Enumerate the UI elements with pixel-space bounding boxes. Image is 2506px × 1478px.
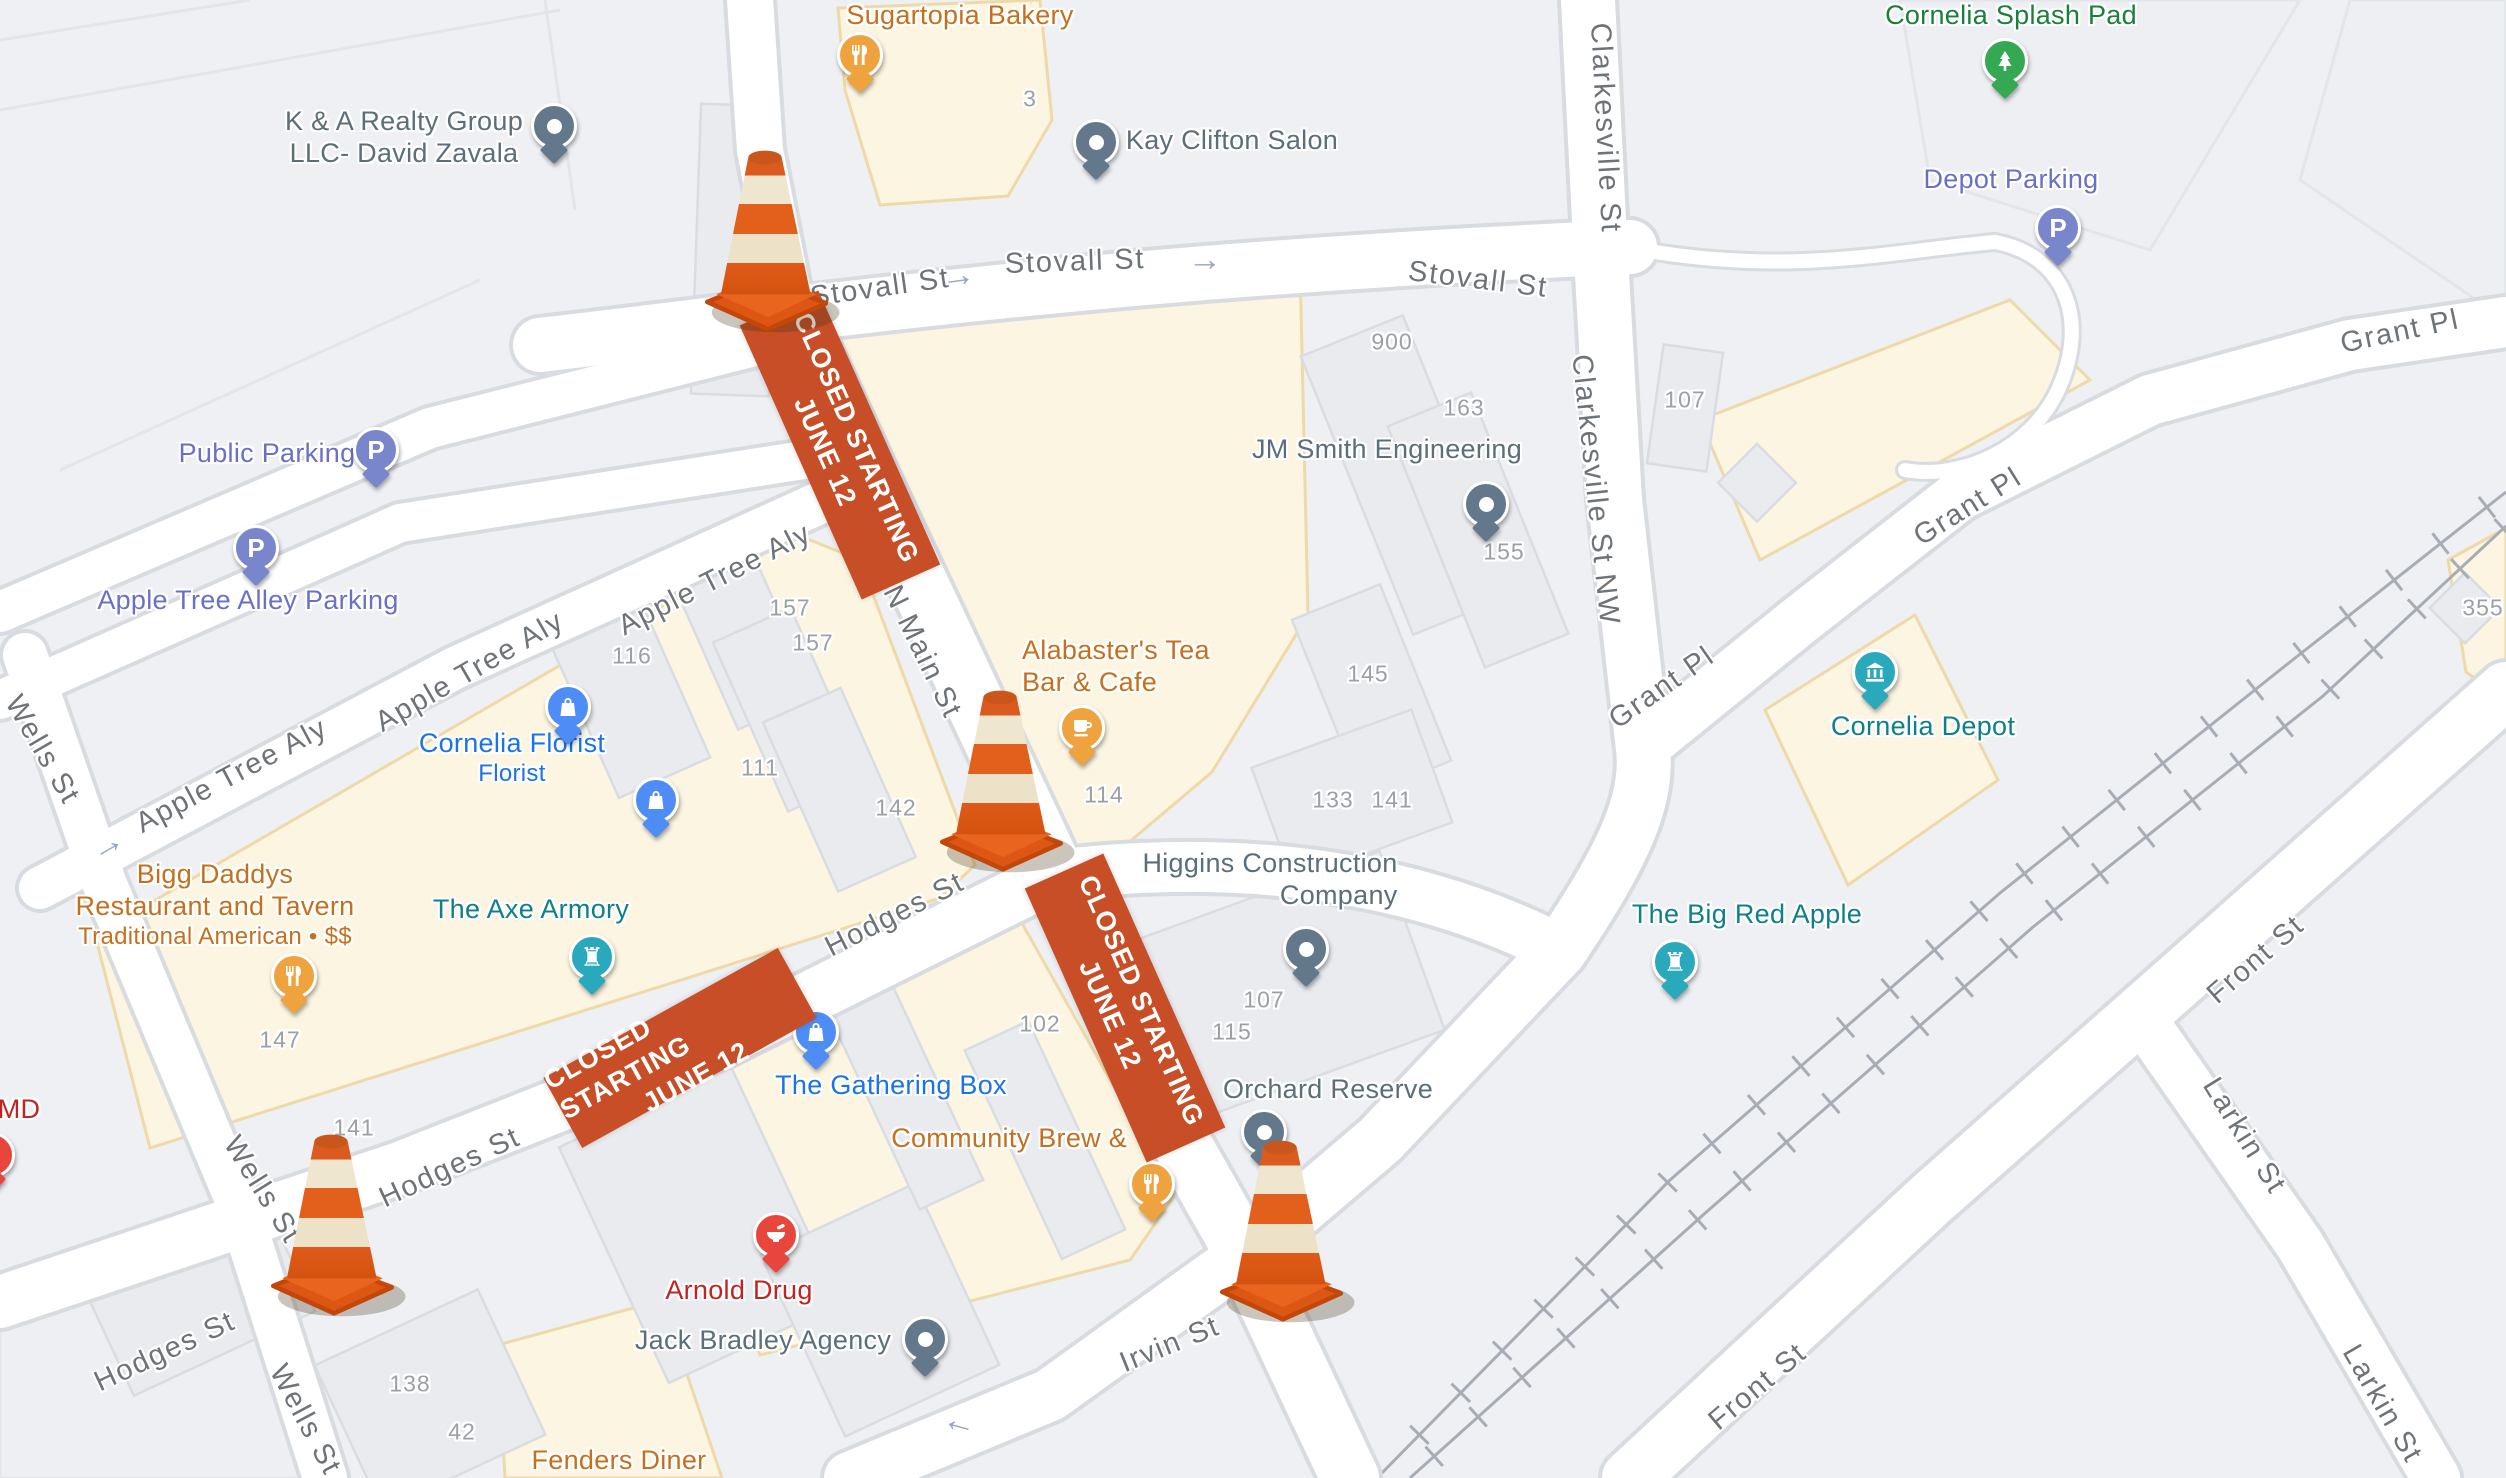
parking-icon: P (367, 435, 384, 466)
building-number: 142 (875, 795, 916, 822)
building-number: 145 (1347, 661, 1388, 688)
building-number: 157 (792, 630, 833, 657)
poi-label-splash-pad[interactable]: Cornelia Splash Pad (1885, 0, 2137, 32)
traffic-cone (1204, 1126, 1356, 1324)
big-red-apple-pin[interactable]: ♜ (1652, 939, 1698, 985)
direction-arrow-icon: → (938, 254, 977, 297)
poi-label-arnold-drug[interactable]: Arnold Drug (665, 1275, 812, 1307)
parking-pin[interactable]: P (2035, 205, 2081, 251)
parking-icon: P (2049, 213, 2066, 244)
shop-pin[interactable] (633, 777, 679, 823)
rook-icon: ♜ (1663, 949, 1686, 975)
agency-pin[interactable] (902, 1316, 948, 1362)
building-number: 115 (1212, 1019, 1252, 1046)
construction-pin[interactable] (1283, 926, 1329, 972)
axe-armory-pin[interactable]: ♜ (569, 934, 615, 980)
restaurant-pin[interactable] (271, 953, 317, 999)
poi-label-apple-alley-parking[interactable]: Apple Tree Alley Parking (97, 585, 398, 617)
tree-icon (1993, 49, 2017, 73)
park-pin[interactable] (1982, 38, 2028, 84)
florist-pin[interactable] (545, 684, 591, 730)
poi-label-higgins[interactable]: Higgins Construction Company (1142, 848, 1397, 912)
building-number: 900 (1371, 329, 1412, 356)
shopping-bag-icon (804, 1020, 828, 1044)
building-number: 133 (1312, 787, 1353, 814)
restaurant-pin[interactable] (837, 32, 883, 78)
building-number: 107 (1664, 387, 1705, 414)
building-number: 147 (259, 1027, 300, 1054)
poi-label-kna-realty[interactable]: K & A Realty Group LLC- David Zavala (285, 106, 523, 170)
building-number: 355 (2462, 595, 2503, 622)
poi-label-sugartopia[interactable]: Sugartopia Bakery (846, 0, 1073, 32)
realty-pin[interactable] (531, 103, 577, 149)
fork-knife-icon (282, 964, 306, 988)
brewpub-pin[interactable] (1129, 1161, 1175, 1207)
fork-knife-icon (848, 43, 872, 67)
poi-label-cornelia-florist[interactable]: Cornelia Florist Florist (419, 728, 605, 788)
dot-icon (1299, 942, 1314, 957)
traffic-cone (689, 136, 841, 334)
poi-label-kay-clifton[interactable]: Kay Clifton Salon (1126, 125, 1338, 157)
poi-label-bigg-daddys[interactable]: Bigg Daddys Restaurant and Tavern Tradit… (76, 859, 355, 951)
poi-label-axe-armory[interactable]: The Axe Armory (433, 894, 629, 926)
dot-icon (918, 1332, 933, 1347)
poi-label-fenders-diner[interactable]: Fenders Diner (532, 1445, 707, 1477)
building-number: 102 (1019, 1011, 1060, 1038)
dot-icon (1479, 497, 1494, 512)
building-number: 141 (1371, 787, 1412, 814)
poi-label-gathering-box[interactable]: The Gathering Box (775, 1070, 1007, 1102)
dot-icon (1089, 135, 1104, 150)
parking-pin[interactable]: P (233, 525, 279, 571)
direction-arrow-icon: → (1188, 241, 1222, 280)
poi-label-public-parking[interactable]: Public Parking (179, 438, 356, 470)
poi-label-cornelia-depot[interactable]: Cornelia Depot (1831, 711, 2015, 743)
building-number: 163 (1443, 395, 1484, 422)
fork-knife-icon (1140, 1172, 1164, 1196)
street-label-stovall: Stovall St (1004, 243, 1146, 281)
dot-icon (547, 119, 562, 134)
parking-pin[interactable]: P (353, 427, 399, 473)
poi-label-orchard-reserve[interactable]: Orchard Reserve (1223, 1074, 1433, 1106)
depot-museum-pin[interactable] (1852, 649, 1898, 695)
traffic-cone (924, 676, 1076, 874)
building-number: 111 (741, 755, 779, 782)
traffic-cone (255, 1120, 407, 1318)
building-number: 116 (612, 643, 652, 670)
museum-icon (1863, 660, 1887, 684)
shopping-bag-icon (556, 695, 580, 719)
building-number: 42 (448, 1419, 476, 1446)
engineering-pin[interactable] (1463, 481, 1509, 527)
poi-label-jm-smith[interactable]: JM Smith Engineering (1252, 434, 1522, 466)
poi-label-md-partial[interactable]: MD (0, 1094, 40, 1126)
mortar-pestle-icon (764, 1223, 788, 1247)
map-canvas[interactable]: 3 900 163 107 355 157 157 116 111 142 11… (0, 0, 2506, 1478)
poi-label-big-red-apple[interactable]: The Big Red Apple (1632, 899, 1862, 931)
building-number: 155 (1483, 539, 1524, 566)
building-number: 138 (389, 1371, 430, 1398)
building-number: 107 (1243, 987, 1284, 1014)
building-number: 157 (769, 595, 810, 622)
poi-label-jack-bradley[interactable]: Jack Bradley Agency (635, 1325, 891, 1357)
building-number: 3 (1023, 86, 1037, 113)
pharmacy-pin[interactable] (753, 1212, 799, 1258)
building-number: 114 (1084, 782, 1124, 809)
shopping-bag-icon (644, 788, 668, 812)
parking-icon: P (247, 533, 264, 564)
poi-label-depot-parking[interactable]: Depot Parking (1924, 164, 2099, 196)
castle-icon: ♜ (580, 944, 603, 970)
salon-pin[interactable] (1073, 119, 1119, 165)
